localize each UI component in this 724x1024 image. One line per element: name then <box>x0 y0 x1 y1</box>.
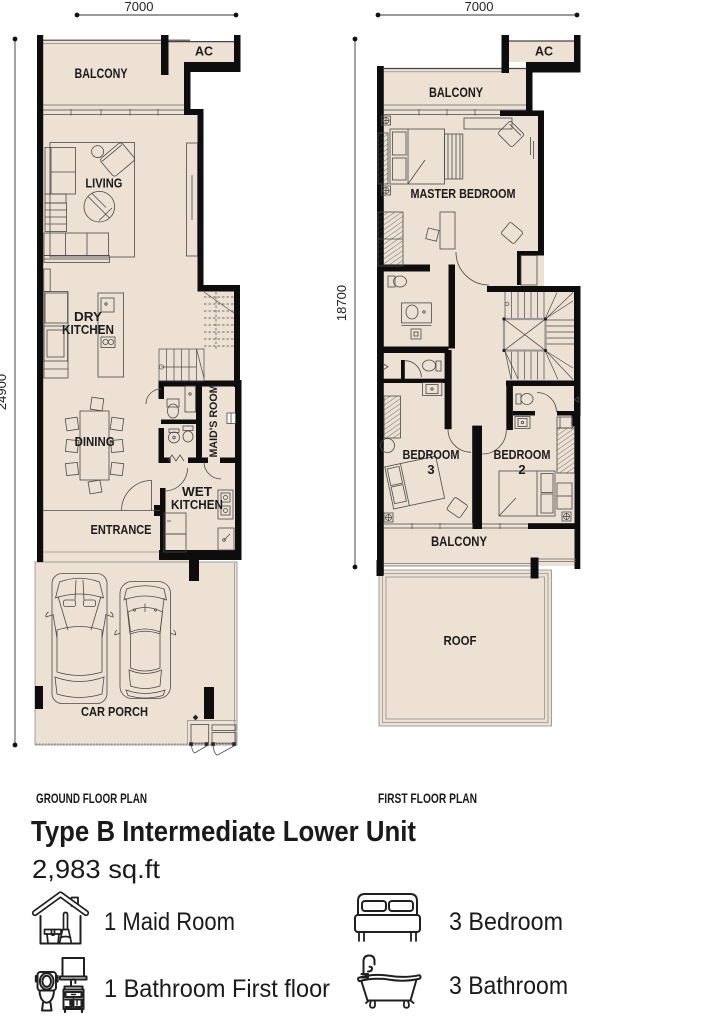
svg-text:3 Bathroom: 3 Bathroom <box>449 972 568 1000</box>
svg-text:CAR PORCH: CAR PORCH <box>81 704 148 719</box>
svg-text:7000: 7000 <box>465 0 494 14</box>
svg-text:24900: 24900 <box>0 374 9 410</box>
svg-text:Type B Intermediate Lower Unit: Type B Intermediate Lower Unit <box>31 816 416 848</box>
svg-text:MAID'S ROOM: MAID'S ROOM <box>208 385 220 458</box>
svg-text:BEDROOM: BEDROOM <box>494 447 551 462</box>
svg-text:3: 3 <box>427 462 434 477</box>
svg-text:BALCONY: BALCONY <box>431 534 487 549</box>
svg-text:AC: AC <box>535 45 553 59</box>
svg-text:BALCONY: BALCONY <box>75 66 128 81</box>
svg-text:AC: AC <box>195 45 213 59</box>
svg-text:GROUND FLOOR PLAN: GROUND FLOOR PLAN <box>36 790 147 806</box>
svg-text:BEDROOM: BEDROOM <box>403 447 460 462</box>
svg-text:KITCHEN: KITCHEN <box>62 323 114 337</box>
svg-text:1 Maid Room: 1 Maid Room <box>104 908 235 936</box>
svg-text:1 Bathroom First floor: 1 Bathroom First floor <box>104 975 330 1003</box>
svg-text:KITCHEN: KITCHEN <box>171 498 223 512</box>
svg-text:LIVING: LIVING <box>85 177 122 191</box>
svg-text:2: 2 <box>518 462 525 477</box>
svg-text:WET: WET <box>182 485 212 499</box>
svg-text:BALCONY: BALCONY <box>429 85 483 100</box>
svg-text:2,983 sq.ft: 2,983 sq.ft <box>32 854 161 884</box>
svg-text:3 Bedroom: 3 Bedroom <box>449 908 563 936</box>
svg-text:ROOF: ROOF <box>444 633 477 648</box>
svg-text:DINING: DINING <box>75 435 115 449</box>
svg-text:7000: 7000 <box>125 0 154 14</box>
svg-text:ENTRANCE: ENTRANCE <box>91 523 152 537</box>
svg-text:18700: 18700 <box>334 285 349 321</box>
svg-text:FIRST FLOOR PLAN: FIRST FLOOR PLAN <box>378 790 477 806</box>
svg-text:MASTER BEDROOM: MASTER BEDROOM <box>411 186 516 201</box>
svg-text:DRY: DRY <box>74 310 103 324</box>
